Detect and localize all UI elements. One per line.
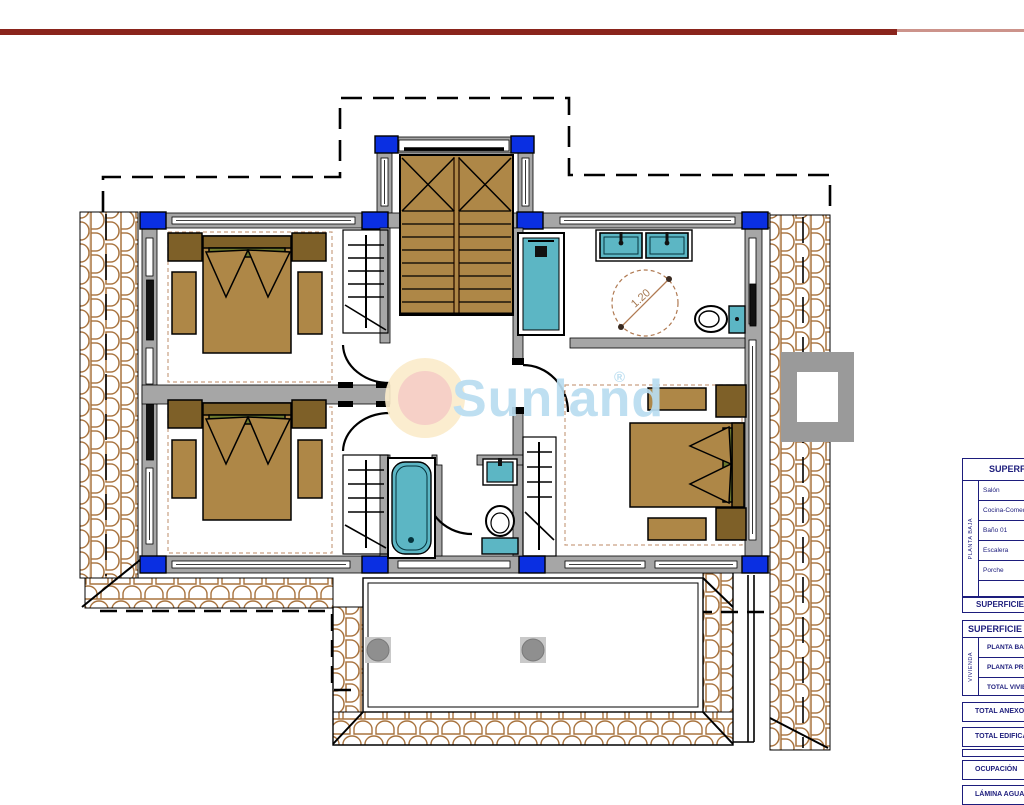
area-tables-panel: SUPERFICIES PLANTA BAJA Salón Cocina-Com… [962,0,1024,800]
lower-table-title: SUPERFICIE [962,620,1024,638]
table-row: PLANTA BAJA [979,638,1024,658]
bedroom-1 [168,233,326,353]
double-vanity [596,230,692,261]
upper-table-group: PLANTA BAJA [963,481,979,596]
watermark-text: Sunland [452,370,664,428]
watermark-logo-dot [398,371,452,425]
total-band: TOTAL EDIFICACIÓN [962,727,1024,747]
closet-master [523,437,556,556]
toilet-top [695,306,745,333]
total-band: LÁMINA AGUA [962,785,1024,805]
table-row: Escalera [979,541,1024,561]
watermark: Sunland ® [385,358,664,438]
chimney [781,352,854,442]
bathtub [388,458,435,558]
porch-column [520,637,546,663]
upper-table-body: PLANTA BAJA Salón Cocina-Comedor Baño 01… [962,480,1024,597]
toilet-small [482,506,518,554]
lower-table-body: VIVIENDA PLANTA BAJA PLANTA PRIMERA TOTA… [962,637,1024,696]
floor-plan-page: { "header": { "rule_dark": "#8a241c", "r… [0,0,1024,800]
lower-table-group: VIVIENDA [963,638,979,695]
upper-table-title: SUPERFICIES [962,458,1024,481]
staircase [400,155,513,315]
table-row: Baño 01 [979,521,1024,541]
porch-side-wall [733,575,754,742]
porch-column [365,637,391,663]
floor-plan-drawing: 1.20 Sunland ® [0,0,1024,800]
watermark-registered: ® [614,369,625,386]
table-row: TOTAL VIVIENDA [979,678,1024,697]
turning-circle: 1.20 [612,270,678,336]
table-row: PLANTA PRIMERA [979,658,1024,678]
table-row: Porche [979,561,1024,581]
upper-table-footer: SUPERFICIE [962,597,1024,613]
bedroom-2 [168,400,326,520]
shower [518,233,564,335]
table-row: Cocina-Comedor [979,501,1024,521]
total-band [962,749,1024,757]
washbasin-small [483,458,517,485]
total-band: OCUPACIÓN [962,760,1024,780]
total-band: TOTAL ANEXOS [962,702,1024,722]
table-row: Salón [979,481,1024,501]
